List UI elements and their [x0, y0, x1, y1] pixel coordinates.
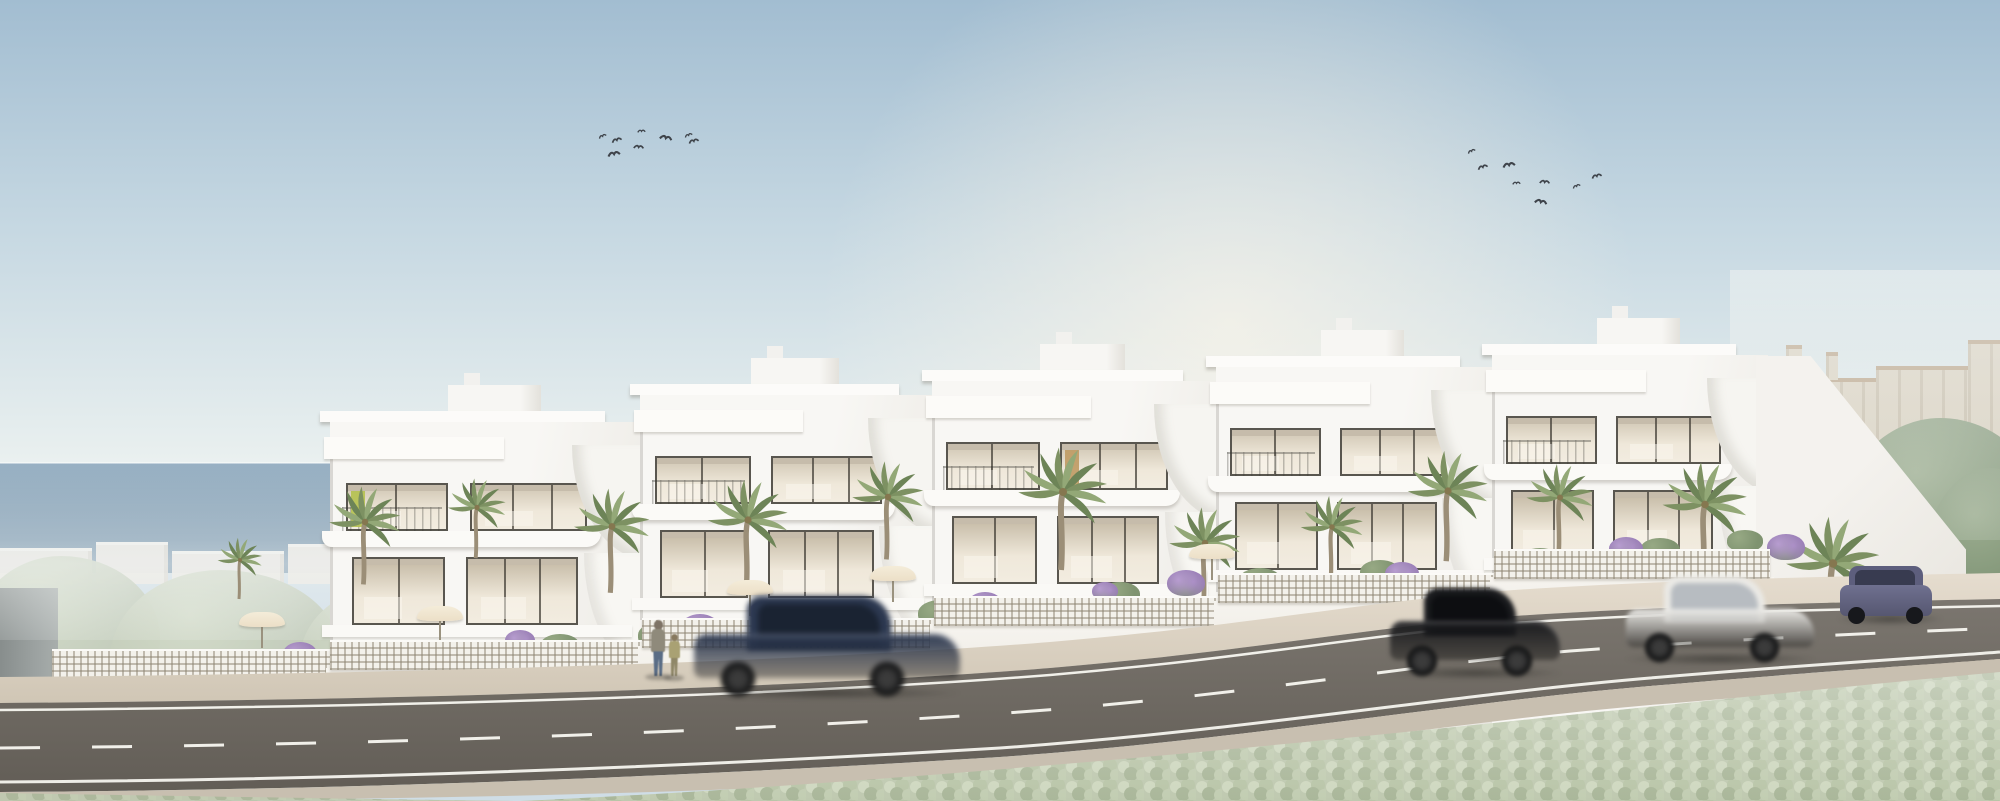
- bird: [1512, 180, 1521, 186]
- bird: [637, 128, 646, 134]
- architectural-rendering-scene: [0, 0, 2000, 801]
- bird: [687, 136, 700, 146]
- bird: [633, 142, 645, 151]
- bird: [597, 132, 607, 141]
- bird: [1590, 171, 1603, 181]
- bird: [1466, 147, 1476, 156]
- bird: [1571, 182, 1581, 190]
- bird: [1476, 162, 1489, 172]
- bird: [1502, 159, 1517, 170]
- bird: [607, 148, 622, 159]
- bird: [658, 131, 674, 144]
- bird: [610, 135, 623, 145]
- birds: [0, 0, 2000, 801]
- bird: [1533, 195, 1549, 208]
- bird: [1539, 177, 1551, 186]
